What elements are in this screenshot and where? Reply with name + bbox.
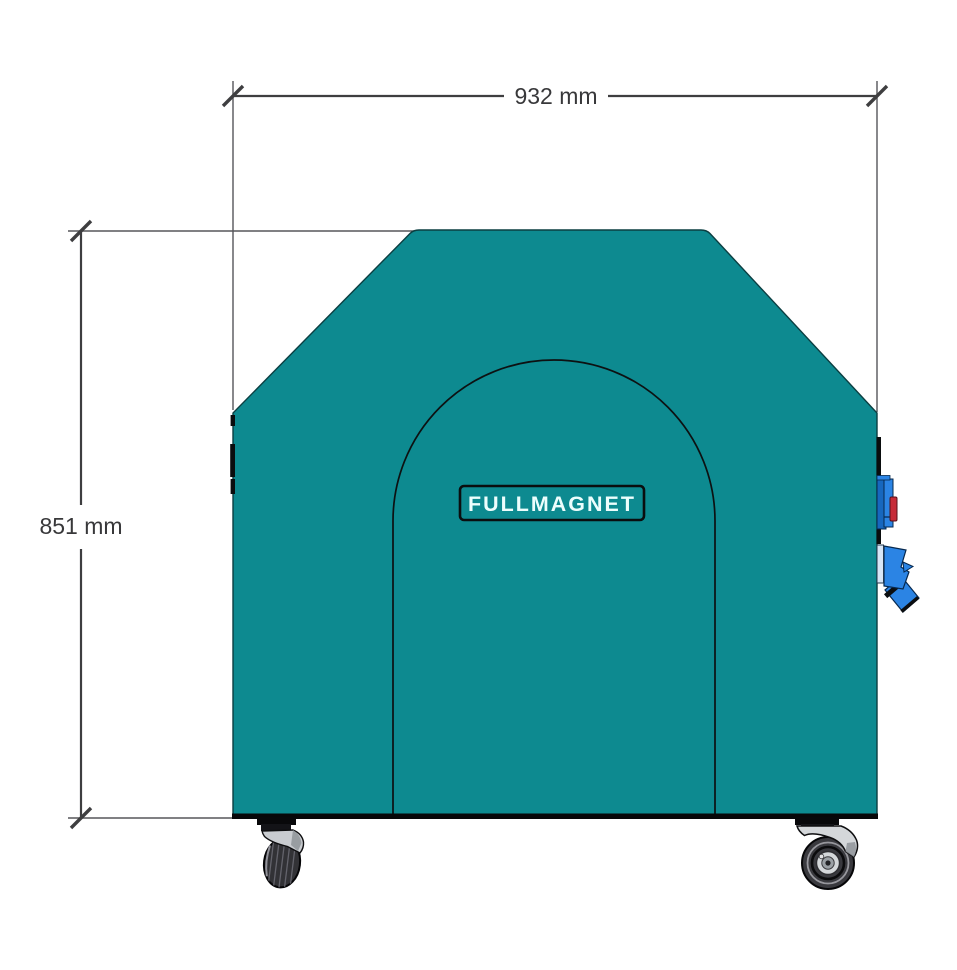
swivel-caster-left [257,818,304,891]
hinge-top [231,415,235,426]
machine-housing [233,230,877,816]
swivel-caster-right [795,818,858,890]
socket-cap [877,476,890,481]
hinge-middle [230,444,235,477]
machine-side-view-drawing: 932 mm 851 mm FULLMAGNET [0,0,957,970]
plug-latch [903,562,913,572]
technical-drawing-canvas: 932 mm 851 mm FULLMAGNET [0,0,957,970]
logo-text: FULLMAGNET [468,493,636,516]
right-side-fittings [877,437,920,612]
logo-plate: FULLMAGNET [460,486,644,520]
base-edge [232,814,878,820]
red-switch [890,497,897,521]
caster-plate [257,818,296,826]
hinge-bottom [231,479,235,494]
power-socket [877,476,897,530]
height-dimension-label: 851 mm [39,513,122,539]
hub-bolt [819,854,824,859]
caster-plate [795,818,839,826]
wheel-axle [825,860,830,865]
width-dimension-label: 932 mm [514,83,597,109]
power-plug [877,545,919,612]
plug-wall-strip [877,545,884,583]
